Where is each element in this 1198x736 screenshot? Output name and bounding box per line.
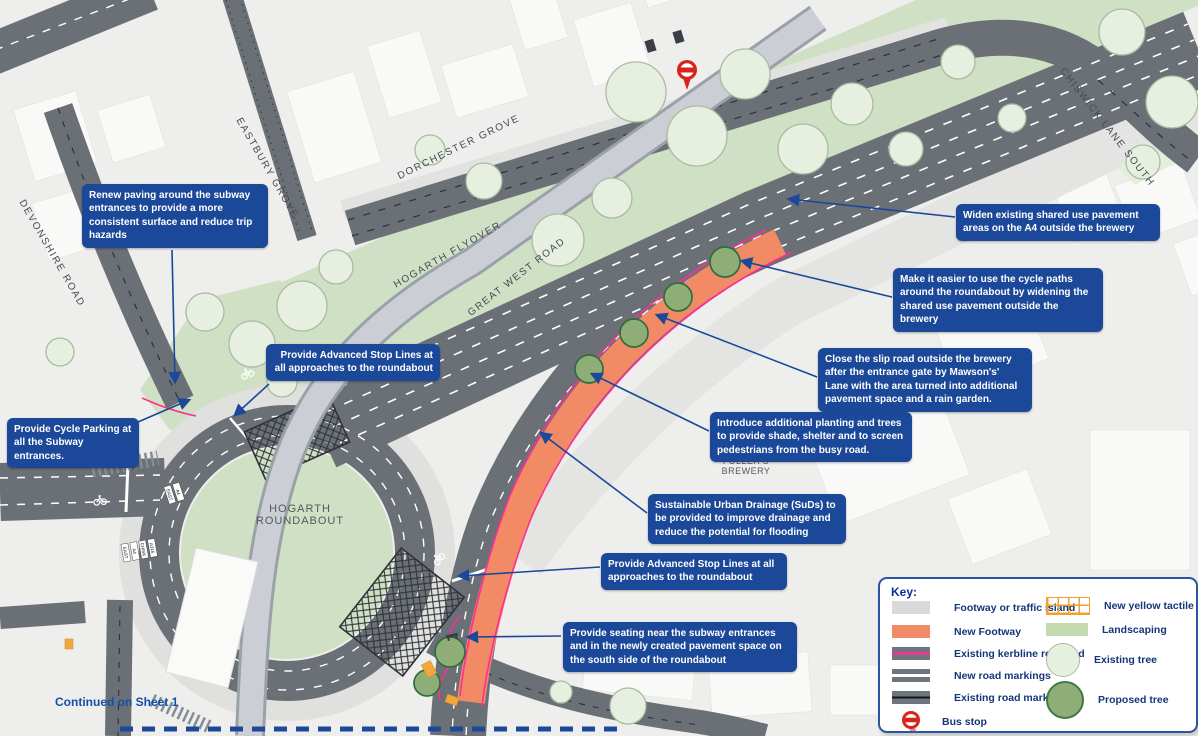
existing-road-markings-swatch: [892, 691, 930, 704]
annotation-cycle-parking: Provide Cycle Parking at all the Subway …: [7, 418, 139, 468]
new-footway-swatch: [892, 625, 930, 638]
annotation-close-slip-road: Close the slip road outside the brewery …: [818, 348, 1032, 412]
legend-item-existing-road-markings: Existing road markings: [892, 691, 1070, 704]
annotation-widen-pavement: Widen existing shared use pavement areas…: [956, 204, 1160, 241]
annotation-renew-paving: Renew paving around the subway entrances…: [82, 184, 268, 248]
legend-item-landscaping: Landscaping: [1046, 623, 1167, 636]
annotation-easier-cycle-paths: Make it easier to use the cycle paths ar…: [893, 268, 1103, 332]
legend-item-bus-stop: Bus stop: [892, 709, 987, 735]
new-yellow-tactile-swatch: [1046, 597, 1090, 615]
legend-item-proposed-tree: Proposed tree: [1046, 681, 1169, 719]
legend-item-existing-tree: Existing tree: [1046, 643, 1157, 677]
legend-item-new-footway: New Footway: [892, 625, 1021, 638]
legend-item-yellow-tactile: New yellow tactile: [1046, 597, 1194, 615]
annotation-asl-north: Provide Advanced Stop Lines at all appro…: [266, 344, 440, 381]
proposed-tree-icon: [1046, 681, 1084, 719]
annotation-asl-south: Provide Advanced Stop Lines at all appro…: [601, 553, 787, 590]
existing-tree-icon: [1046, 643, 1080, 677]
place-label-roundabout: HOGARTH ROUNDABOUT: [230, 503, 370, 527]
legend-item-new-road-markings: New road markings: [892, 669, 1051, 682]
legend-title: Key:: [891, 585, 917, 599]
legend: Key: Footway or traffic island New Footw…: [878, 577, 1198, 733]
arrow-seating: [468, 636, 561, 637]
kerbline-removed-swatch: [892, 647, 930, 660]
annotation-additional-planting: Introduce additional planting and trees …: [710, 412, 912, 462]
annotation-suds: Sustainable Urban Drainage (SuDs) to be …: [648, 494, 846, 544]
new-road-markings-swatch: [892, 669, 930, 682]
landscaping-swatch: [1046, 623, 1088, 636]
annotation-seating: Provide seating near the subway entrance…: [563, 622, 797, 672]
scheme-plan: A316 CHISK A4 EAST A4 EAST: [0, 0, 1198, 736]
bus-stop-icon: [892, 709, 930, 735]
footway-swatch: [892, 601, 930, 614]
continued-note: Continued on Sheet 1: [55, 695, 178, 709]
